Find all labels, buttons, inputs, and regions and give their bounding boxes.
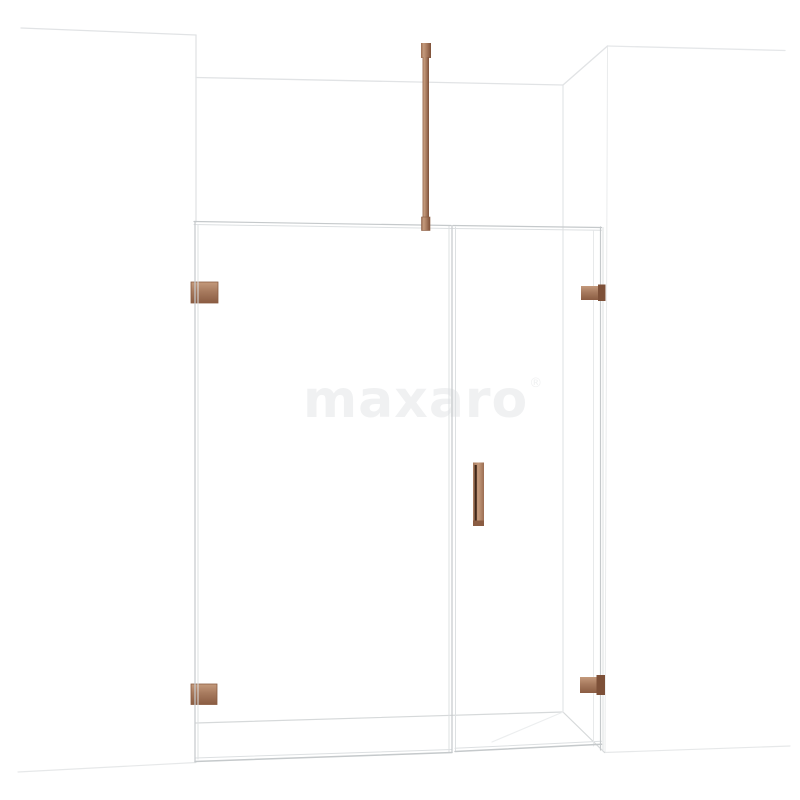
shower-line-art xyxy=(0,0,800,800)
hinge-bottom-plate-icon xyxy=(580,677,599,693)
product-image-shower-enclosure: maxaro® xyxy=(0,0,800,800)
ceiling-bar-rod-icon xyxy=(423,57,430,218)
door-handle xyxy=(473,463,484,527)
door-bottom-edge xyxy=(455,744,602,751)
left-wall-top-edge xyxy=(21,28,196,35)
back-wall-top-edge xyxy=(196,78,563,86)
right-near-corner-edge xyxy=(605,46,608,752)
hinge-top-knuckle-icon xyxy=(598,285,606,302)
ceiling-bar-cap-icon xyxy=(421,43,431,58)
hinge-top-plate-icon xyxy=(581,286,599,300)
door-floor-shadow-line xyxy=(492,712,563,742)
hinge-bottom-knuckle-icon xyxy=(597,675,606,695)
left-facing-wall-floor-line xyxy=(18,763,196,773)
door-hinges xyxy=(580,285,606,696)
right-facing-wall-floor-line xyxy=(605,746,791,753)
door-top-inner-edge xyxy=(453,229,602,231)
ceiling-support-bar xyxy=(421,43,431,231)
right-wall-top-edge xyxy=(563,46,608,85)
back-wall-floor-line xyxy=(196,712,563,723)
right-facing-wall-top-edge xyxy=(608,46,786,51)
door-top-edge xyxy=(453,226,602,228)
ceiling-bar-clamp-icon xyxy=(422,217,431,231)
door-handle-slot-icon xyxy=(475,465,477,522)
door-handle-foot-icon xyxy=(473,521,484,527)
